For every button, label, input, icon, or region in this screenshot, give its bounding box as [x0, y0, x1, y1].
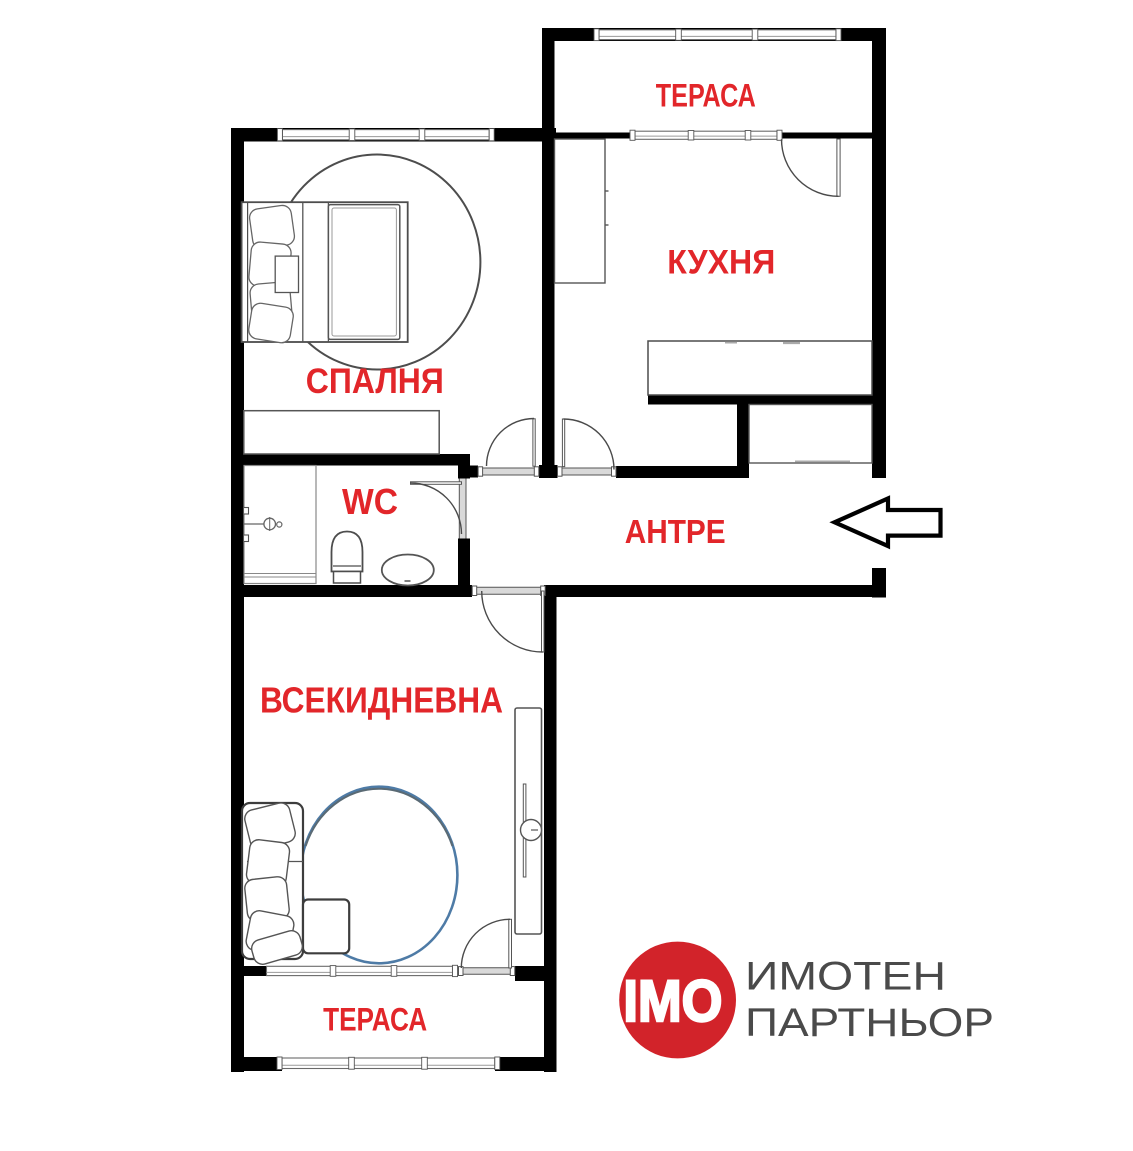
svg-text:WC: WC — [342, 481, 398, 522]
svg-text:АНТРЕ: АНТРЕ — [625, 513, 726, 550]
svg-text:ТЕРАСА: ТЕРАСА — [323, 1002, 427, 1038]
svg-text:КУХНЯ: КУХНЯ — [667, 243, 775, 281]
svg-text:ИМОТЕН: ИМОТЕН — [745, 955, 946, 999]
svg-text:СПАЛНЯ: СПАЛНЯ — [306, 362, 444, 401]
svg-text:ВСЕКИДНЕВНА: ВСЕКИДНЕВНА — [260, 680, 503, 721]
svg-text:ПАРТНЬОР: ПАРТНЬОР — [745, 1001, 994, 1045]
svg-text:ТЕРАСА: ТЕРАСА — [656, 78, 756, 114]
svg-text:IMO: IMO — [623, 969, 722, 1034]
